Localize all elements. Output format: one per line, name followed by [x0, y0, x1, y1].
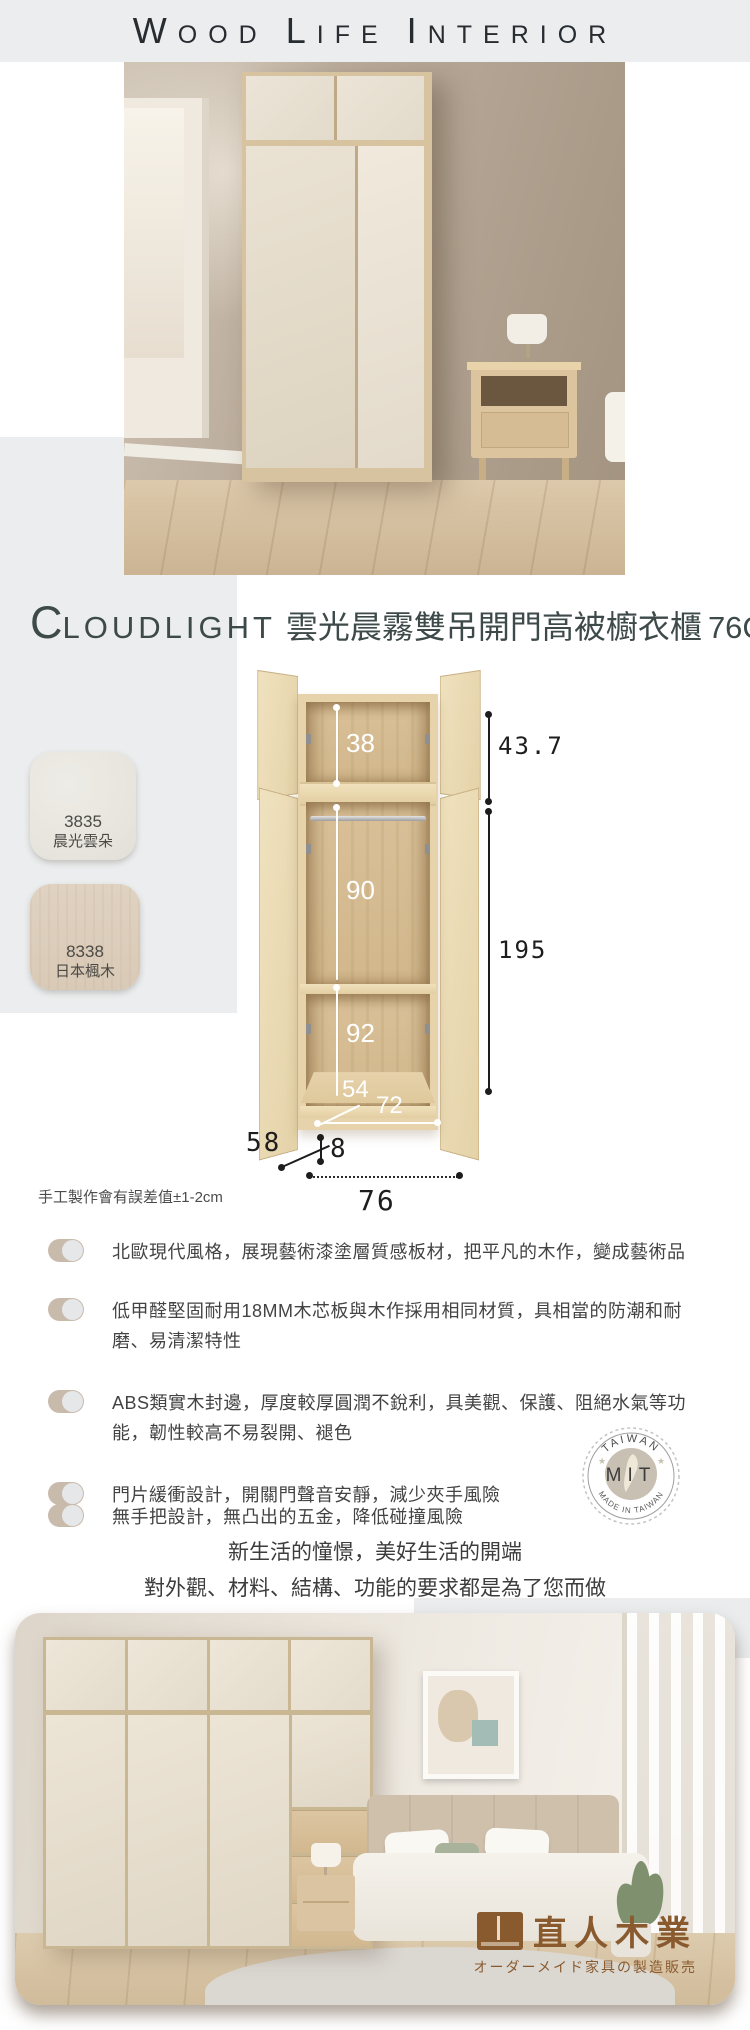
page: WOOD LIFE INTERIOR	[0, 0, 750, 2030]
brand-word-2: LIFE	[286, 10, 389, 52]
bullet-pill-icon	[48, 1298, 84, 1321]
hinge-icon	[306, 844, 311, 854]
dim-92: 92	[346, 1018, 375, 1049]
photo-lamp	[507, 314, 547, 344]
dim-line-76	[310, 1176, 458, 1178]
hero-photo	[124, 62, 625, 575]
brand-watermark: 直人木業 オーダーメイド家具の製造販売	[474, 1906, 697, 1977]
feature-item: 低甲醛堅固耐用18MM木芯板與木作採用相同材質，具相當的防潮和耐磨、易清潔特性	[48, 1296, 708, 1356]
feature-text: 低甲醛堅固耐用18MM木芯板與木作採用相同材質，具相當的防潮和耐磨、易清潔特性	[112, 1296, 708, 1356]
header-band: WOOD LIFE INTERIOR	[0, 0, 750, 62]
wardrobe-door	[128, 1715, 207, 1946]
wardrobe-top-door	[337, 76, 425, 140]
dim-54: 54	[342, 1076, 369, 1104]
dim-dot-black	[306, 1172, 313, 1179]
dim-line-195	[488, 812, 490, 1090]
brand-logo: WOOD LIFE INTERIOR	[133, 10, 617, 52]
bullet-pill-icon	[48, 1504, 84, 1527]
feature-item: 北歐現代風格，展現藝術漆塗層質感板材，把平凡的木作，變成藝術品	[48, 1237, 708, 1267]
wardrobe-door	[210, 1715, 289, 1946]
bullet-knob-icon	[62, 1299, 83, 1320]
hinge-icon	[425, 1024, 430, 1034]
bullet-pill-icon	[48, 1239, 84, 1262]
wardrobe-top-cabinets	[46, 1640, 370, 1710]
photo-lamp-stem	[526, 344, 530, 358]
dim-90: 90	[346, 875, 375, 906]
dim-195: 195	[498, 936, 547, 964]
photo-wardrobe-top-cabinet	[246, 76, 424, 140]
color-swatch-3835: 3835 晨光雲朵	[30, 752, 136, 860]
diagram-carcass	[298, 694, 438, 1130]
dim-dot-black	[278, 1164, 285, 1171]
product-title: C LOUDLIGHT 雲光晨霧雙吊開門高被櫥衣櫃 76CM	[30, 600, 744, 648]
dim-line-43-7	[488, 716, 490, 800]
wardrobe-top-door	[128, 1640, 207, 1710]
brand-word-1: WOOD	[133, 10, 268, 52]
wardrobe-logo-icon	[477, 1912, 523, 1950]
dim-dot	[434, 1119, 441, 1126]
photo-wall-art	[423, 1671, 519, 1779]
photo-bed-corner	[605, 392, 625, 462]
photo-lamp	[311, 1843, 341, 1867]
bottom-photo: 直人木業 オーダーメイド家具の製造販売	[15, 1613, 735, 2005]
title-initial: C	[30, 600, 63, 645]
feature-text: 北歐現代風格，展現藝術漆塗層質感板材，把平凡的木作，變成藝術品	[112, 1237, 708, 1267]
wardrobe-door	[46, 1715, 125, 1946]
wardrobe-top-door	[246, 76, 334, 140]
wardrobe-top-door	[46, 1640, 125, 1710]
dim-76: 76	[358, 1184, 396, 1217]
photo-nightstand	[471, 362, 577, 458]
dim-dot	[333, 704, 340, 711]
mit-badge-svg: TAIWAN MADE IN TAIWAN MIT ★ ★	[581, 1426, 681, 1526]
hinge-icon	[306, 1024, 311, 1034]
dim-line-8	[320, 1138, 322, 1160]
diagram-door-top-right	[440, 670, 481, 800]
dimension-diagram: 38 90 92 54 72 43.7 195 58 8 76	[230, 670, 540, 1210]
dim-dot-black	[317, 1158, 324, 1165]
nightstand-leg	[562, 458, 569, 480]
photo-floor	[124, 480, 625, 575]
nightstand-leg	[479, 458, 486, 480]
bullet-knob-icon	[62, 1391, 83, 1412]
title-size: 76CM	[708, 610, 750, 646]
color-swatch-8338: 8338 日本楓木	[30, 884, 140, 990]
photo-wardrobe-doors	[246, 146, 424, 468]
nightstand-shelf	[481, 376, 567, 406]
dim-dot	[314, 1120, 321, 1127]
dim-line-90	[336, 808, 338, 980]
swatch-name: 日本楓木	[55, 962, 115, 981]
photo-window-pane	[124, 108, 184, 358]
dim-8: 8	[330, 1134, 348, 1164]
art-shape	[472, 1720, 498, 1746]
dim-dot-black	[456, 1172, 463, 1179]
photo-nightstand	[297, 1875, 355, 1931]
diagram-shelf-board	[300, 984, 436, 994]
watermark-brand: 直人木業	[533, 1906, 697, 1955]
nightstand-drawer-line	[303, 1901, 349, 1903]
photo-wardrobe	[242, 72, 432, 482]
mit-badge: TAIWAN MADE IN TAIWAN MIT ★ ★	[581, 1426, 681, 1526]
tolerance-note: 手工製作會有誤差值±1-2cm	[38, 1186, 223, 1207]
wardrobe-door-right	[358, 146, 424, 468]
brand-word-3: INTERIOR	[407, 10, 618, 52]
diagram-door-bottom-left	[259, 787, 298, 1160]
dim-dot-black	[485, 711, 492, 718]
dim-43-7: 43.7	[498, 732, 564, 760]
hinge-icon	[425, 844, 430, 854]
slogan-line-1: 新生活的憧憬，美好生活的開端	[0, 1536, 750, 1566]
title-zh: 雲光晨霧雙吊開門高被櫥衣櫃	[286, 602, 702, 648]
dim-line-92	[336, 988, 338, 1096]
badge-star-right-icon: ★	[657, 1456, 665, 1466]
wardrobe-top-door	[291, 1640, 370, 1710]
diagram-hanging-rod	[310, 816, 426, 821]
title-en: LOUDLIGHT	[63, 610, 276, 646]
badge-mit-text: MIT	[606, 1465, 657, 1486]
dim-dot	[333, 804, 340, 811]
dim-dot	[333, 780, 340, 787]
bullet-knob-icon	[62, 1505, 83, 1526]
bullet-knob-icon	[62, 1240, 83, 1261]
nightstand-top	[467, 362, 581, 370]
dim-line-72	[322, 1122, 438, 1124]
hinge-icon	[306, 734, 311, 744]
wardrobe-top-door	[210, 1640, 289, 1710]
dim-dot-black	[317, 1134, 324, 1141]
dim-dot-black	[485, 1088, 492, 1095]
hinge-icon	[425, 734, 430, 744]
dim-line-38	[336, 708, 338, 784]
nightstand-drawer	[481, 412, 569, 448]
wardrobe-side-door	[292, 1715, 370, 1807]
dim-dot-black	[485, 808, 492, 815]
dim-dot-black	[485, 798, 492, 805]
diagram-bottom-board	[300, 1106, 436, 1118]
swatch-code: 3835	[64, 811, 102, 832]
watermark-tagline: オーダーメイド家具の製造販売	[474, 1957, 697, 1977]
bullet-knob-icon	[62, 1483, 83, 1504]
bullet-pill-icon	[48, 1390, 84, 1413]
photo-window	[124, 98, 209, 438]
dim-58: 58	[246, 1128, 281, 1158]
swatch-code: 8338	[66, 941, 104, 962]
wardrobe-door-left	[246, 146, 355, 468]
dim-38: 38	[346, 728, 375, 759]
dim-72: 72	[376, 1092, 403, 1120]
badge-star-left-icon: ★	[598, 1456, 606, 1466]
diagram-door-bottom-right	[440, 787, 479, 1160]
dim-dot	[333, 984, 340, 991]
diagram-door-top-left	[257, 670, 298, 800]
swatch-name: 晨光雲朵	[53, 832, 113, 851]
